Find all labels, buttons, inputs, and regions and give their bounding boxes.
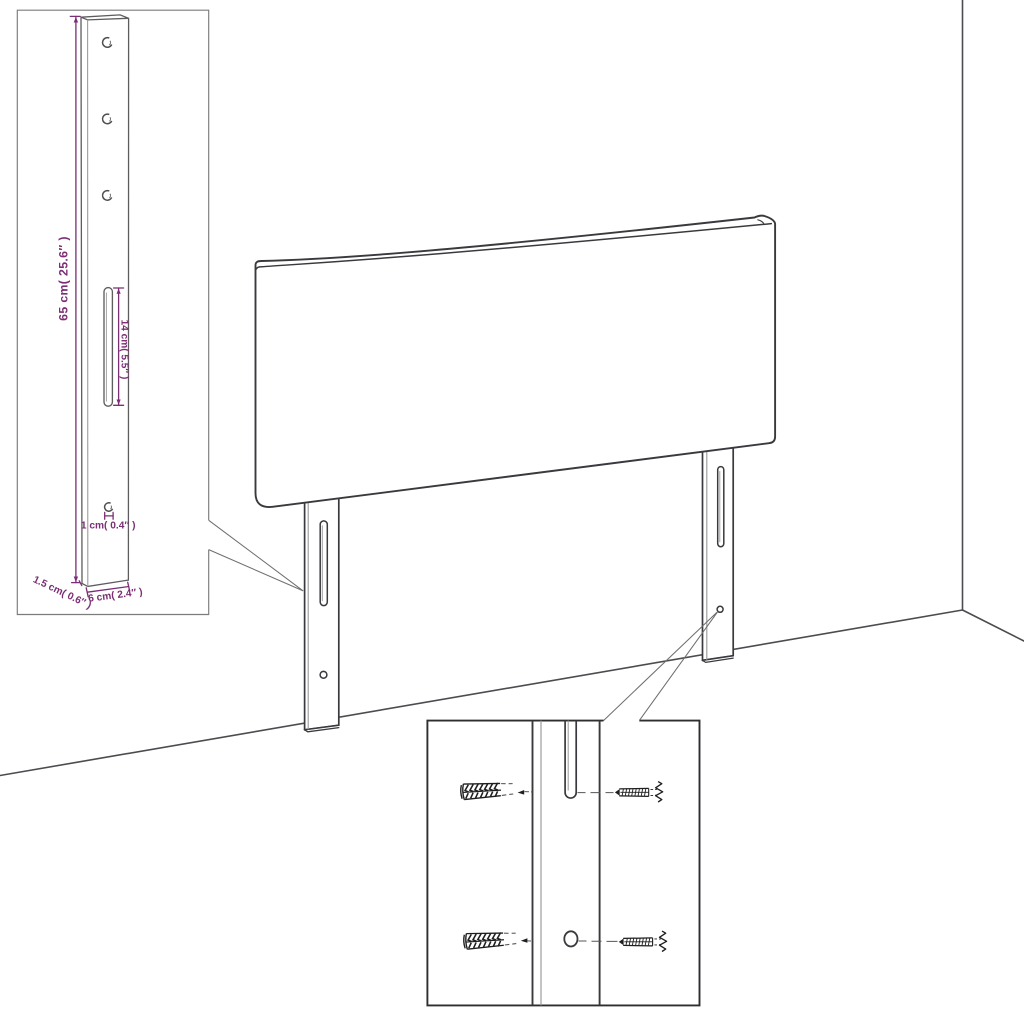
svg-text:14 cm( 5.5″ ): 14 cm( 5.5″ ) [119,320,130,380]
svg-text:1 cm( 0.4″ ): 1 cm( 0.4″ ) [81,521,136,532]
svg-text:65 cm( 25.6″ ): 65 cm( 25.6″ ) [56,236,70,321]
